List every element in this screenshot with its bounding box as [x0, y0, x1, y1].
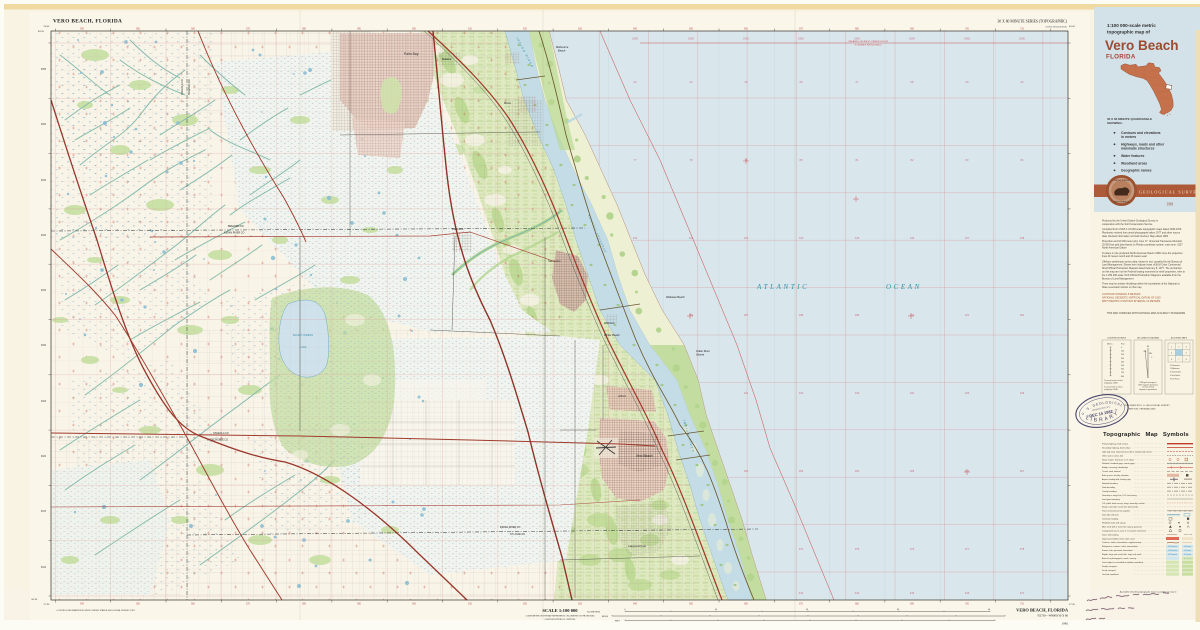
svg-text:Mine shaft; drill or mine hole: Mine shaft; drill or mine hole; quarry; … — [1102, 526, 1142, 529]
svg-text:Airport: landing field; landin: Airport: landing field; landing strip — [1102, 478, 1131, 481]
svg-text:Windmill; water well; spring: Windmill; water well; spring — [1102, 522, 1125, 525]
svg-text:Topographic Map Symbols: Topographic Map Symbols — [1103, 432, 1189, 438]
svg-text:Primary highway, hard surface: Primary highway, hard surface — [1102, 444, 1128, 446]
svg-text:1959: 1959 — [632, 37, 638, 41]
svg-text:Railroad: standard gage; narro: Railroad: standard gage; narrow gage — [1102, 462, 1135, 465]
svg-text:ST LUCIE CO: ST LUCIE CO — [510, 533, 525, 536]
svg-text:DECLINATION DIAGRAM: DECLINATION DIAGRAM — [1137, 337, 1159, 340]
svg-text:Indian River: Indian River — [696, 349, 710, 353]
svg-text:302: 302 — [744, 469, 749, 473]
svg-text:132: 132 — [689, 236, 694, 240]
svg-text:80°45´: 80°45´ — [32, 598, 39, 601]
svg-text:1965: 1965 — [964, 37, 970, 41]
svg-text:Power transmission line; pipel: Power transmission line; pipeline — [1102, 510, 1130, 513]
svg-text:3: 3 — [1186, 346, 1187, 348]
svg-text:5 Fort Pierce: 5 Fort Pierce — [1170, 378, 1180, 381]
svg-text:National boundary: National boundary — [1102, 482, 1118, 485]
svg-text:Township or range line, U.S. l: Township or range line, U.S. land survey — [1102, 495, 1137, 497]
svg-text:BATHYMETRIC CONTOUR INTERVAL 1: BATHYMETRIC CONTOUR INTERVAL 10 METERS — [1102, 300, 1161, 303]
svg-text:138: 138 — [1020, 236, 1025, 240]
svg-text:Secondary highway, hard surfac: Secondary highway, hard surface — [1102, 447, 1131, 449]
svg-text:1966: 1966 — [1019, 37, 1025, 41]
svg-text:Bureau of Land Management: Bureau of Land Management — [1102, 277, 1134, 280]
svg-text:Depression/outflow; levee; dam: Depression/outflow; levee; dam; sand — [1102, 537, 1134, 540]
svg-text:cooperation with the Soil Cons: cooperation with the Soil Conservation S… — [1102, 223, 1153, 226]
svg-text:FLORIDA: FLORIDA — [1106, 54, 1136, 61]
svg-text:27°30´: 27°30´ — [44, 603, 51, 606]
svg-text:Cemetery; building: Cemetery; building — [1102, 518, 1118, 521]
svg-text:189: 189 — [855, 313, 860, 317]
svg-text:241: 241 — [744, 391, 749, 395]
svg-text:State boundary: State boundary — [1102, 486, 1115, 489]
svg-text:1963: 1963 — [854, 37, 860, 41]
svg-text:800: 800 — [1121, 376, 1124, 378]
svg-text:246: 246 — [1020, 391, 1025, 395]
svg-text:242: 242 — [799, 391, 804, 395]
svg-text:ADJOINING MAPS: ADJOINING MAPS — [1171, 337, 1188, 340]
svg-text:377: 377 — [965, 547, 970, 551]
svg-text:Palm Bay: Palm Bay — [404, 52, 419, 56]
svg-text:3045: 3045 — [41, 180, 47, 182]
svg-text:Land subject to controlled inu: Land subject to controlled inundation; w… — [1102, 561, 1143, 564]
svg-text:5: 5 — [1186, 353, 1187, 355]
svg-text:SCALE 1:100 000: SCALE 1:100 000 — [542, 608, 578, 613]
svg-text:133: 133 — [744, 236, 749, 240]
svg-text:444: 444 — [855, 591, 860, 595]
svg-text:County boundary: County boundary — [1102, 490, 1117, 493]
svg-text:Woodland areas: Woodland areas — [1121, 161, 1147, 165]
svg-text:State reservation shown on thi: State reservation shown on this map — [1102, 286, 1142, 289]
svg-text:lines 40 meters south and 26 m: lines 40 meters south and 26 meters east — [1102, 255, 1147, 258]
svg-text:131: 131 — [633, 236, 638, 240]
svg-text:137: 137 — [965, 236, 970, 240]
svg-text:Scrub; vineyard: Scrub; vineyard — [1102, 570, 1115, 572]
svg-text:Fellsmere: Fellsmere — [452, 227, 464, 231]
svg-text:192: 192 — [1020, 313, 1025, 317]
svg-text:3010: 3010 — [41, 567, 47, 569]
svg-text:Wabasso Beach: Wabasso Beach — [666, 295, 685, 299]
svg-text:4: 4 — [1171, 353, 1172, 355]
svg-text:376: 376 — [910, 547, 915, 551]
svg-text:multiply by 0.3048: multiply by 0.3048 — [1104, 388, 1118, 391]
svg-text:1981: 1981 — [1166, 203, 1173, 207]
svg-text:304: 304 — [855, 469, 860, 473]
svg-text:136: 136 — [910, 236, 915, 240]
svg-text:OCEAN: OCEAN — [886, 283, 922, 291]
svg-text:INDIAN RIVER CO: INDIAN RIVER CO — [500, 526, 520, 529]
svg-text:Malabar: Malabar — [442, 57, 452, 61]
svg-text:in meters: in meters — [1121, 135, 1136, 139]
svg-text:Bridge; causeway; drawbridge: Bridge; causeway; drawbridge — [1102, 467, 1128, 469]
svg-text:28°00´: 28°00´ — [44, 25, 51, 28]
svg-text:Sandy; mangrove: Sandy; mangrove — [1102, 566, 1117, 568]
svg-text:700: 700 — [1121, 372, 1124, 374]
svg-text:CONVERSION TABLE: CONVERSION TABLE — [1107, 337, 1127, 340]
svg-text:North American Datum: North American Datum — [1102, 247, 1127, 250]
svg-text:Geographic names: Geographic names — [1121, 169, 1152, 173]
svg-text:OSCEOLA CO: OSCEOLA CO — [181, 79, 184, 95]
svg-text:305: 305 — [910, 469, 915, 473]
svg-text:447: 447 — [1020, 591, 1025, 595]
svg-text:1:100 000-scale metric: 1:100 000-scale metric — [1107, 23, 1156, 28]
svg-text:134: 134 — [799, 236, 804, 240]
svg-text:Built up area; locality; eleva: Built up area; locality; elevation — [1102, 474, 1129, 477]
svg-text:Vero Beach: Vero Beach — [1105, 38, 1179, 53]
svg-text:4 Vero Beach: 4 Vero Beach — [1170, 374, 1180, 377]
svg-text:80°00´: 80°00´ — [1069, 25, 1076, 28]
svg-text:3015: 3015 — [41, 511, 47, 513]
svg-text:THIS MAP COMPLIES WITH NATIONA: THIS MAP COMPLIES WITH NATIONAL MAP ACCU… — [1107, 312, 1186, 315]
svg-text:306: 306 — [965, 469, 970, 473]
svg-text:Tunnel: road; railroad: Tunnel: road; railroad — [1102, 471, 1120, 473]
svg-text:375: 375 — [855, 547, 860, 551]
svg-text:Land grant boundary: Land grant boundary — [1102, 498, 1120, 501]
svg-text:3040: 3040 — [41, 235, 47, 237]
svg-text:186: 186 — [689, 313, 694, 317]
svg-text:100: 100 — [1121, 351, 1124, 353]
svg-text:GEOLOGICAL SURVE: GEOLOGICAL SURVE — [1139, 190, 1197, 195]
svg-text:UNITED STATES: UNITED STATES — [1114, 179, 1130, 182]
svg-text:Wabasso: Wabasso — [604, 321, 615, 325]
svg-text:Stream: lake; perennial; inter: Stream: lake; perennial; intermittent — [1102, 549, 1133, 552]
svg-text:1964: 1964 — [909, 37, 915, 41]
svg-text:3035: 3035 — [41, 290, 47, 292]
svg-text:Water features: Water features — [1121, 154, 1145, 158]
svg-text:MILES: MILES — [602, 616, 609, 618]
svg-text:Light duty road, improved road: Light duty road, improved road, dirt or … — [1102, 450, 1152, 453]
svg-text:378: 378 — [1020, 547, 1025, 551]
svg-text:Campground; picnic area; U. S.: Campground; picnic area; U. S. location … — [1102, 529, 1146, 532]
svg-text:30 X 60 MINUTE SERIES (TOPOGRA: 30 X 60 MINUTE SERIES (TOPOGRAPHIC) — [998, 20, 1068, 24]
svg-text:Dam; dike with lock: Dam; dike with lock — [1102, 514, 1119, 517]
svg-text:Winter Beach: Winter Beach — [604, 333, 620, 337]
svg-text:VERO BEACH, FLORIDA: VERO BEACH, FLORIDA — [1016, 608, 1069, 613]
svg-text:1 Kissimmee: 1 Kissimmee — [1170, 365, 1180, 367]
svg-text:INDIAN RIVER CO: INDIAN RIVER CO — [224, 232, 244, 235]
svg-text:445: 445 — [910, 591, 915, 595]
svg-text:307: 307 — [1020, 469, 1025, 473]
svg-text:244: 244 — [910, 391, 915, 395]
svg-text:7: 7 — [1178, 359, 1179, 361]
svg-text:topographic map of: topographic map of — [1107, 30, 1150, 35]
svg-text:300: 300 — [1121, 358, 1124, 360]
svg-text:446: 446 — [965, 591, 970, 595]
svg-text:Meters: Meters — [1107, 343, 1113, 346]
svg-text:243: 243 — [855, 391, 860, 395]
svg-text:Vero Beach: Vero Beach — [636, 454, 653, 458]
svg-text:0: 0 — [1121, 347, 1122, 349]
svg-text:BLUE CYPRESS: BLUE CYPRESS — [293, 333, 313, 337]
svg-text:3020: 3020 — [41, 456, 47, 458]
svg-text:N2730—W8000/30 X 60: N2730—W8000/30 X 60 — [1038, 614, 1069, 618]
svg-text:135: 135 — [855, 236, 860, 240]
svg-text:Lakewood Park: Lakewood Park — [628, 544, 647, 548]
svg-text:3050: 3050 — [41, 124, 47, 126]
svg-text:2: 2 — [1178, 346, 1179, 348]
svg-text:303: 303 — [799, 469, 804, 473]
svg-text:3030: 3030 — [41, 345, 47, 347]
svg-text:3025: 3025 — [41, 401, 47, 403]
svg-text:Orchard; woodland: Orchard; woodland — [1102, 574, 1118, 576]
svg-text:PUBLISHED BY U. S. GEOLOGICAL: PUBLISHED BY U. S. GEOLOGICAL SURVEY — [1124, 404, 1170, 407]
svg-text:Feet: Feet — [1121, 343, 1125, 346]
svg-text:443: 443 — [799, 591, 804, 595]
svg-text:27°30´: 27°30´ — [1069, 603, 1076, 606]
svg-text:BREVARD CO: BREVARD CO — [228, 225, 244, 228]
svg-text:▪ CONTROL INFORMATION SOURCE:: ▪ CONTROL INFORMATION SOURCE: UNITED STA… — [56, 609, 136, 612]
svg-text:Range; township; section line: Range; township; section line (protracte… — [1102, 506, 1138, 509]
svg-text:Gifford: Gifford — [618, 394, 626, 398]
svg-text:manmade structures: manmade structures — [1121, 147, 1154, 151]
svg-text:BREVARD CO: BREVARD CO — [188, 79, 191, 95]
svg-text:1962: 1962 — [798, 37, 804, 41]
svg-text:U.S. public lands survey: rang: U.S. public lands survey: range; townshi… — [1102, 502, 1145, 505]
svg-text:3055: 3055 — [41, 69, 47, 71]
svg-text:CONTOUR INTERVAL 5 METERS: CONTOUR INTERVAL 5 METERS — [545, 618, 577, 621]
svg-text:Bathymetric contours: index, i: Bathymetric contours: index, intermediat… — [1102, 545, 1138, 548]
svg-text:188: 188 — [799, 313, 804, 317]
svg-text:1960: 1960 — [688, 37, 694, 41]
svg-text:diagram is approximate: diagram is approximate — [1139, 388, 1157, 391]
svg-text:RESTON, VIRGINIA 22092: RESTON, VIRGINIA 22092 — [1129, 407, 1156, 410]
svg-text:Dune; cliff; building: Dune; cliff; building — [1102, 534, 1118, 536]
svg-text:Route marker: Interstate; U. S: Route marker: Interstate; U. S.; State — [1102, 458, 1134, 461]
svg-text:Area of no photographs; marsh,: Area of no photographs; marsh, swamp — [1102, 557, 1136, 560]
svg-text:200: 200 — [1121, 354, 1124, 356]
svg-text:8: 8 — [1186, 359, 1187, 361]
svg-text:ATLANTIC: ATLANTIC — [756, 283, 809, 291]
svg-text:500: 500 — [1121, 365, 1124, 367]
svg-text:400: 400 — [1121, 361, 1124, 363]
svg-text:1 CENTIMETER ON THE MAP REPRES: 1 CENTIMETER ON THE MAP REPRESENTS 1 KIL… — [525, 615, 595, 618]
svg-text:(JOINS MELBOURNE): (JOINS MELBOURNE) — [1045, 26, 1067, 29]
svg-text:FEET: FEET — [615, 621, 621, 623]
svg-text:245: 245 — [965, 391, 970, 395]
svg-text:VERO BEACH, FLORIDA: VERO BEACH, FLORIDA — [53, 19, 122, 25]
svg-text:600: 600 — [1121, 369, 1124, 371]
svg-text:1961: 1961 — [743, 37, 749, 41]
svg-text:TO MOBILE 994 KM VIA I-5: TO MOBILE 994 KM VIA I-5 — [854, 43, 882, 46]
svg-text:Shores: Shores — [696, 352, 705, 356]
svg-text:Contours: index, intermediate,: Contours: index, intermediate, supplemen… — [1102, 541, 1141, 544]
svg-text:Other road or street, trail: Other road or street, trail — [1102, 454, 1124, 457]
svg-text:DEPT INTERIOR: DEPT INTERIOR — [1114, 202, 1130, 204]
svg-text:2 Melbourne: 2 Melbourne — [1170, 367, 1179, 370]
svg-text:KILOMETERS: KILOMETERS — [587, 612, 601, 614]
svg-text:1981: 1981 — [1062, 622, 1069, 626]
svg-text:3 Okeechobee: 3 Okeechobee — [1170, 372, 1181, 374]
svg-text:data. Revised information not: data. Revised information not field chec… — [1102, 235, 1169, 238]
svg-text:SHOWING:: SHOWING: — [1107, 121, 1123, 125]
svg-text:190: 190 — [910, 313, 915, 317]
svg-text:191: 191 — [965, 313, 970, 317]
svg-text:1: 1 — [1171, 346, 1172, 348]
svg-text:6: 6 — [1171, 359, 1172, 361]
svg-text:Micco: Micco — [504, 101, 511, 105]
svg-text:187: 187 — [744, 313, 749, 317]
svg-text:multiply by 3.2808: multiply by 3.2808 — [1104, 381, 1118, 384]
svg-text:80°45´: 80°45´ — [38, 30, 45, 33]
svg-text:Melbourne: Melbourne — [556, 45, 569, 49]
svg-text:374: 374 — [799, 547, 804, 551]
svg-text:Beach: Beach — [558, 48, 566, 52]
